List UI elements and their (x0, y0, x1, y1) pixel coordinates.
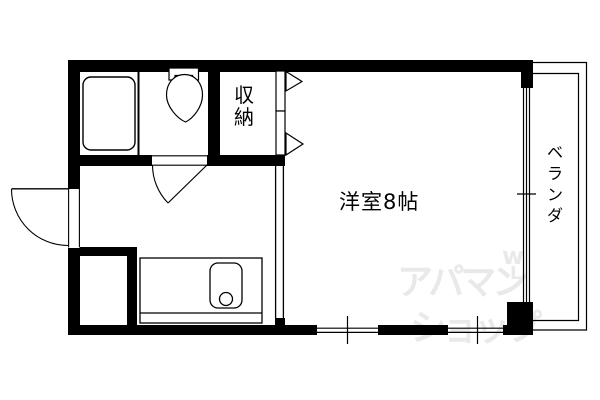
door-swing-triangle-icon (286, 133, 303, 155)
wall-segment (378, 325, 448, 335)
wall-segment (68, 248, 80, 335)
floor-plan-drawing (0, 0, 600, 400)
wall-segment (127, 247, 137, 335)
door-swing-arc (153, 165, 169, 203)
storage-door-leaf (276, 111, 285, 155)
wall-segment (68, 247, 137, 256)
door-swing-arc (12, 189, 69, 246)
door-opening (152, 155, 207, 166)
door-leaf (168, 165, 207, 203)
storage-door-leaf (276, 71, 285, 111)
main-room-label: 洋室8帖 (339, 186, 419, 216)
toilet (167, 68, 203, 122)
window (448, 328, 503, 332)
toilet-door (152, 155, 207, 203)
wall-segment (275, 318, 285, 335)
bathtub (83, 77, 135, 150)
wall-segment (68, 155, 152, 166)
balcony-label: ベランダ (546, 142, 564, 226)
storage-doors (276, 71, 303, 155)
door-swing-triangle-icon (286, 72, 302, 92)
wall-segment (507, 302, 533, 335)
balcony-sliding-door (517, 88, 536, 302)
sink-drain (220, 293, 233, 306)
kitchen-room-divider (276, 166, 284, 318)
floor-plan: アパマン ショップ w L (0, 0, 600, 400)
wall-segment (68, 60, 533, 72)
wall-segment (208, 60, 220, 166)
window (524, 88, 530, 302)
toilet-bowl (167, 75, 203, 123)
kitchen-counter (140, 258, 262, 323)
entrance-door (12, 189, 81, 248)
storage-room-label: 収納 (232, 85, 256, 128)
door-opening (68, 189, 80, 248)
wall-segment (68, 60, 80, 189)
